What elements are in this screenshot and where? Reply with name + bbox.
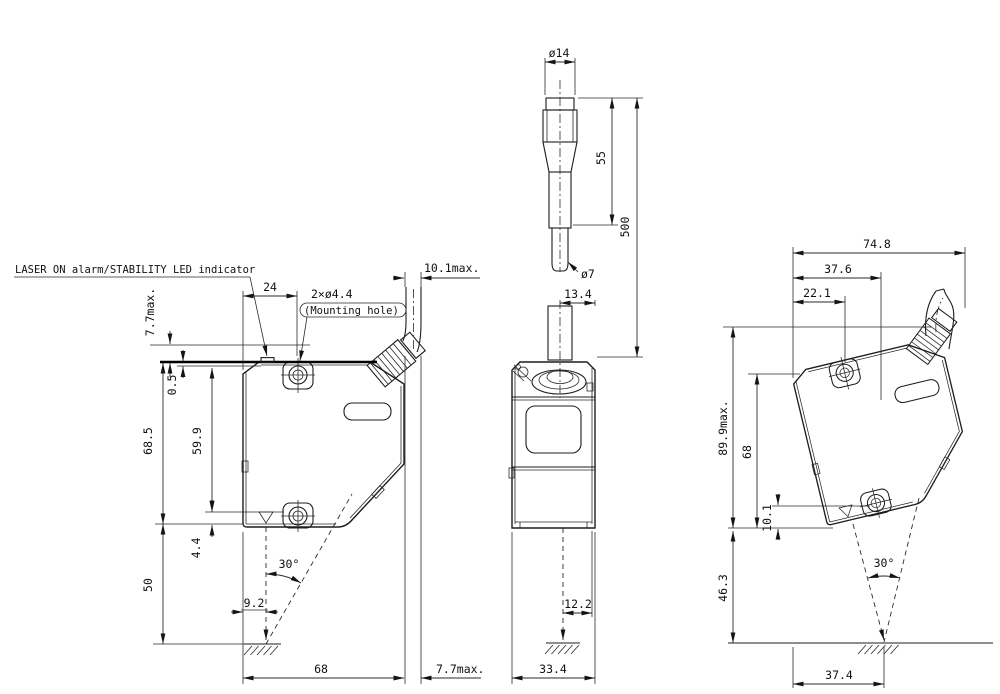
- dim-30deg-rear: 30°: [874, 556, 895, 570]
- ground-symbol-side: [545, 643, 580, 654]
- dim-22-1: 22.1: [803, 286, 831, 300]
- dim-30deg-front: 30°: [279, 557, 300, 571]
- display-window: [526, 406, 581, 453]
- dim-phi14: ø14: [549, 46, 570, 60]
- front-view: LASER ON alarm/STABILITY LED indicator 7…: [14, 261, 484, 684]
- side-view-body: [509, 300, 595, 528]
- mounting-hole-qty: 2×ø4.4: [311, 287, 353, 301]
- dim-68-rear: 68: [740, 445, 754, 459]
- dim-7-7max-top: 7.7max.: [143, 288, 157, 336]
- dim-7-7max-bottom: 7.7max.: [436, 662, 484, 676]
- dim-37-4: 37.4: [825, 668, 853, 682]
- dim-10-1max: 10.1max.: [424, 261, 479, 275]
- dim-24: 24: [263, 280, 277, 294]
- side-view: ø14 55 500 ø7 13.4 12.2 33.4: [509, 46, 643, 684]
- rear-view-labels: 74.8 37.6 22.1 89.9max. 68 10.1 46.3 30°…: [716, 237, 894, 682]
- dim-phi7: ø7: [581, 267, 595, 281]
- front-view-labels: LASER ON alarm/STABILITY LED indicator 7…: [15, 261, 484, 676]
- dim-46-3: 46.3: [716, 574, 730, 602]
- dim-68-width: 68: [314, 662, 328, 676]
- dim-13-4: 13.4: [564, 287, 592, 301]
- dim-10-1: 10.1: [760, 504, 774, 532]
- rear-view: 74.8 37.6 22.1 89.9max. 68 10.1 46.3 30°…: [716, 237, 998, 688]
- front-view-body: [160, 287, 427, 532]
- mounting-hole-note: (Mounting hole): [304, 305, 399, 317]
- dim-55: 55: [594, 151, 608, 165]
- dim-9-2: 9.2: [244, 596, 265, 610]
- dim-4-4: 4.4: [189, 538, 203, 559]
- dim-37-6: 37.6: [824, 262, 852, 276]
- dim-89-9max: 89.9max.: [716, 400, 730, 455]
- side-view-labels: ø14 55 500 ø7 13.4 12.2 33.4: [539, 46, 632, 676]
- side-view-dimensions: [512, 58, 643, 684]
- rear-view-dimensions: [723, 247, 993, 688]
- dim-59-9: 59.9: [190, 427, 204, 455]
- dim-500: 500: [618, 217, 632, 238]
- dim-74-8: 74.8: [863, 237, 891, 251]
- ground-symbol-rear: [858, 645, 899, 654]
- dim-68-5: 68.5: [141, 427, 155, 455]
- dim-12-2: 12.2: [564, 597, 592, 611]
- beam-right: [884, 498, 919, 642]
- technical-drawing: LASER ON alarm/STABILITY LED indicator 7…: [0, 0, 1000, 694]
- dim-33-4: 33.4: [539, 662, 567, 676]
- beam-left: [853, 524, 884, 640]
- dim-0-5: 0.5: [165, 375, 179, 396]
- rear-view-body: [783, 289, 998, 530]
- dim-50: 50: [141, 578, 155, 592]
- side-view-connector: [543, 80, 577, 272]
- ground-symbol: [244, 644, 281, 655]
- drawing-page: LASER ON alarm/STABILITY LED indicator 7…: [0, 0, 1000, 694]
- led-indicator-label: LASER ON alarm/STABILITY LED indicator: [15, 264, 255, 276]
